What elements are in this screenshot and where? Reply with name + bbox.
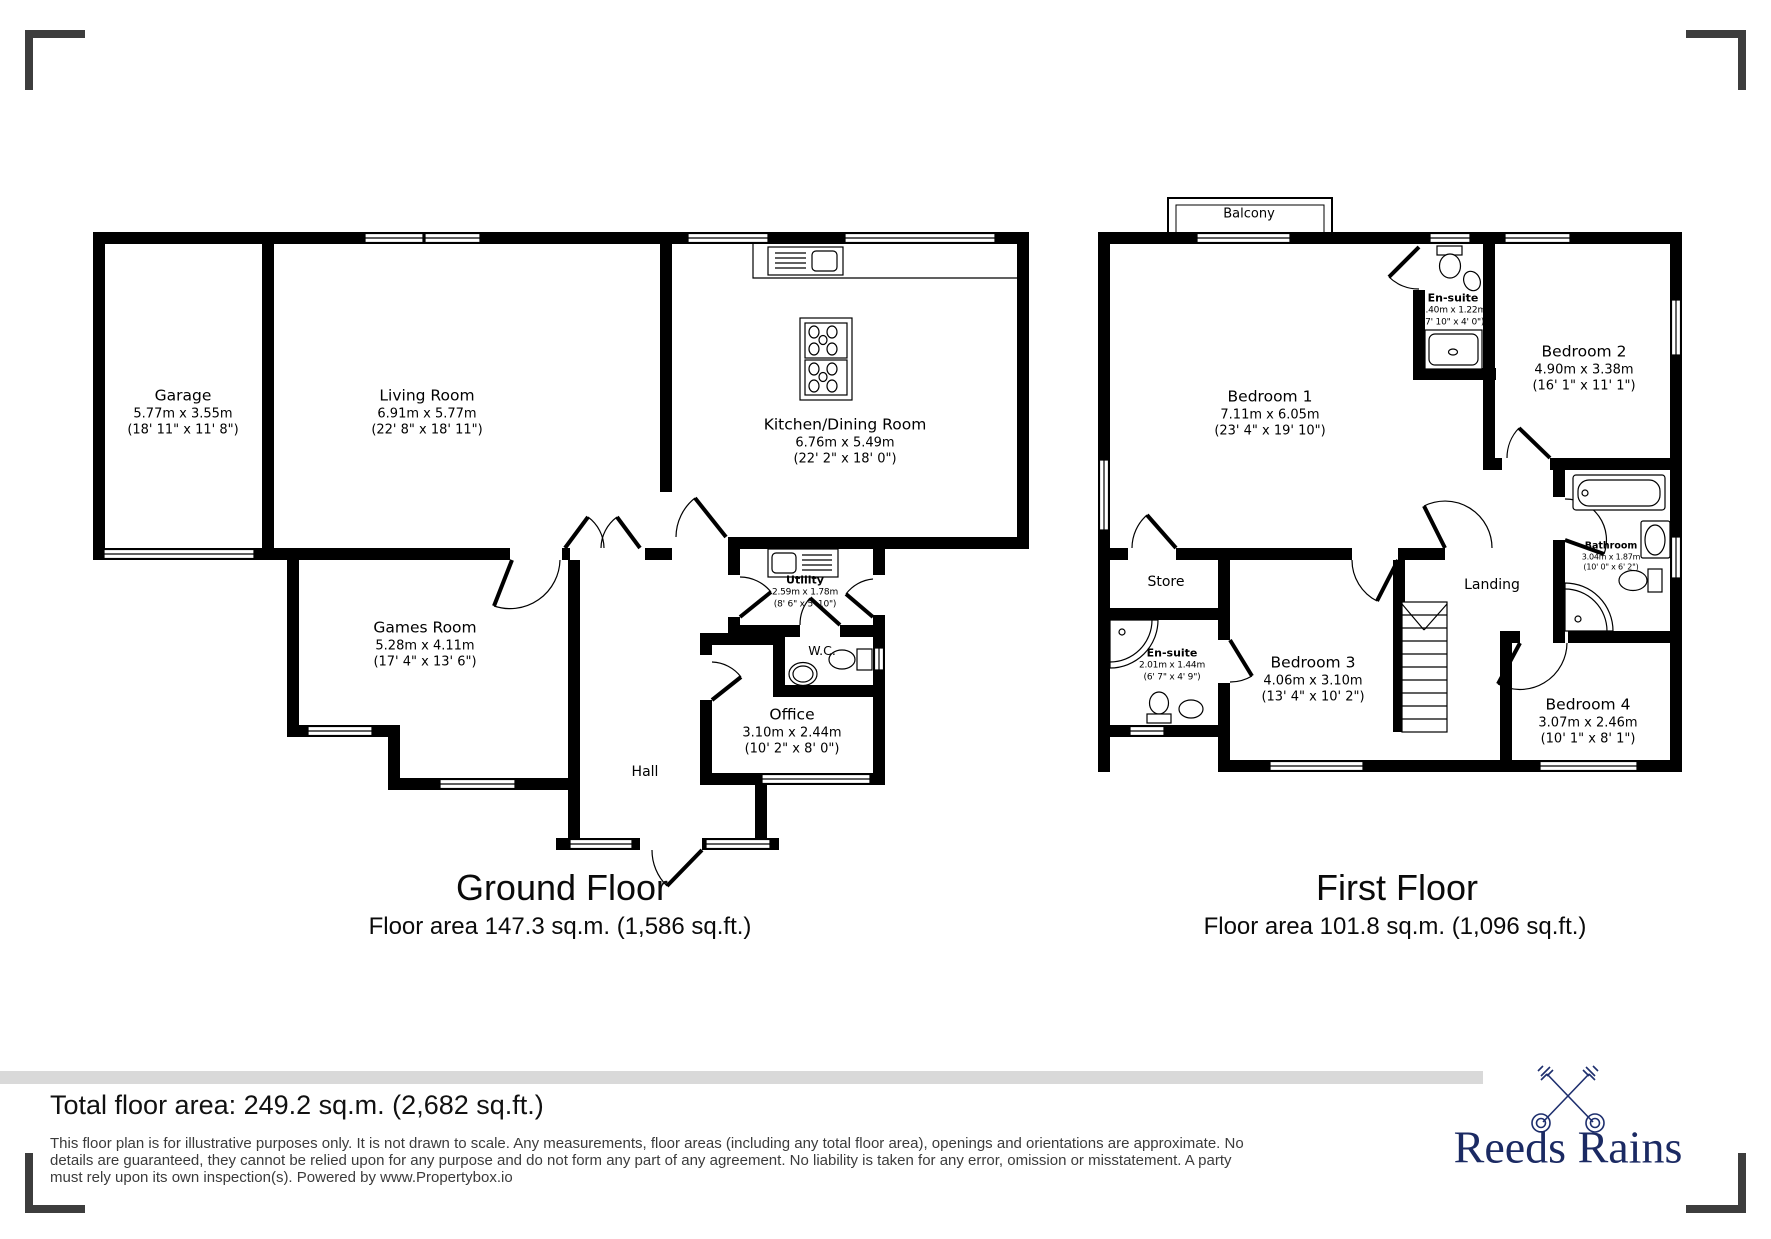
room-label-bedroom4: Bedroom 4 3.07m x 2.46m (10' 1" x 8' 1") bbox=[1538, 695, 1637, 748]
disclaimer-line-1: This floor plan is for illustrative purp… bbox=[50, 1135, 1244, 1152]
wc-basin-icon bbox=[789, 663, 817, 686]
room-label-bedroom3: Bedroom 3 4.06m x 3.10m (13' 4" x 10' 2"… bbox=[1261, 653, 1364, 706]
divider-band bbox=[0, 1071, 1483, 1084]
room-label-store: Store bbox=[1147, 574, 1184, 592]
total-floor-area: Total floor area: 249.2 sq.m. (2,682 sq.… bbox=[50, 1090, 544, 1121]
room-label-bedroom1: Bedroom 1 7.11m x 6.05m (23' 4" x 19' 10… bbox=[1214, 387, 1325, 440]
room-label-balcony: Balcony bbox=[1223, 207, 1275, 224]
room-label-ensuite1: En-suite 2.40m x 1.22m (7' 10" x 4' 0") bbox=[1420, 291, 1486, 328]
floorplan-page: Garage 5.77m x 3.55m (18' 11" x 11' 8") … bbox=[0, 0, 1771, 1239]
first-floor-title: First Floor bbox=[1316, 867, 1478, 909]
room-label-bathroom: Bathroom 3.04m x 1.87m (10' 0" x 6' 2") bbox=[1582, 541, 1640, 574]
bathroom-basin-icon bbox=[1641, 521, 1670, 558]
room-label-office: Office 3.10m x 2.44m (10' 2" x 8' 0") bbox=[742, 705, 841, 758]
first-floor-area: Floor area 101.8 sq.m. (1,096 sq.ft.) bbox=[1204, 913, 1587, 941]
room-label-ensuite2: En-suite 2.01m x 1.44m (6' 7" x 4' 9") bbox=[1139, 646, 1205, 683]
room-label-hall: Hall bbox=[632, 764, 659, 782]
corner-mark-top-right bbox=[1686, 30, 1746, 90]
ensuite1-basin-icon bbox=[1461, 269, 1484, 294]
ground-floor-title: Ground Floor bbox=[456, 867, 668, 909]
bath-icon bbox=[1573, 475, 1665, 510]
corner-mark-top-left bbox=[25, 30, 85, 90]
room-label-bedroom2: Bedroom 2 4.90m x 3.38m (16' 1" x 11' 1"… bbox=[1532, 342, 1635, 395]
corner-mark-bottom-left bbox=[25, 1153, 85, 1213]
stairs-icon bbox=[1402, 602, 1447, 732]
brand-name: Reeds Rains bbox=[1454, 1121, 1683, 1174]
ensuite1-shower-icon bbox=[1425, 330, 1482, 369]
ensuite1-toilet-icon bbox=[1437, 246, 1462, 278]
disclaimer-text: This floor plan is for illustrative purp… bbox=[50, 1135, 1244, 1186]
ground-floor-area: Floor area 147.3 sq.m. (1,586 sq.ft.) bbox=[369, 913, 752, 941]
corner-mark-bottom-right bbox=[1686, 1153, 1746, 1213]
bathroom-shower-icon bbox=[1565, 583, 1613, 631]
room-label-games-room: Games Room 5.28m x 4.11m (17' 4" x 13' 6… bbox=[373, 618, 476, 671]
room-label-living-room: Living Room 6.91m x 5.77m (22' 8" x 18' … bbox=[371, 386, 482, 439]
ensuite2-basin-icon bbox=[1179, 700, 1203, 718]
disclaimer-line-2: details are guaranteed, they cannot be r… bbox=[50, 1152, 1244, 1169]
kitchen-sink-icon bbox=[768, 247, 843, 275]
ensuite2-toilet-icon bbox=[1147, 692, 1171, 723]
disclaimer-line-3: must rely upon its own inspection(s). Po… bbox=[50, 1169, 1244, 1186]
hob-icon bbox=[800, 318, 852, 400]
first-floor-doors bbox=[1132, 247, 1606, 689]
room-label-wc: W.C. bbox=[808, 643, 836, 659]
room-label-garage: Garage 5.77m x 3.55m (18' 11" x 11' 8") bbox=[127, 386, 238, 439]
room-label-utility: Utility 2.59m x 1.78m (8' 6" x 5' 10") bbox=[772, 573, 838, 610]
room-label-landing: Landing bbox=[1464, 577, 1520, 595]
room-label-kitchen: Kitchen/Dining Room 6.76m x 5.49m (22' 2… bbox=[764, 415, 927, 468]
ground-floor-walls bbox=[93, 232, 1029, 850]
floor-plan-drawing bbox=[0, 0, 1771, 1239]
